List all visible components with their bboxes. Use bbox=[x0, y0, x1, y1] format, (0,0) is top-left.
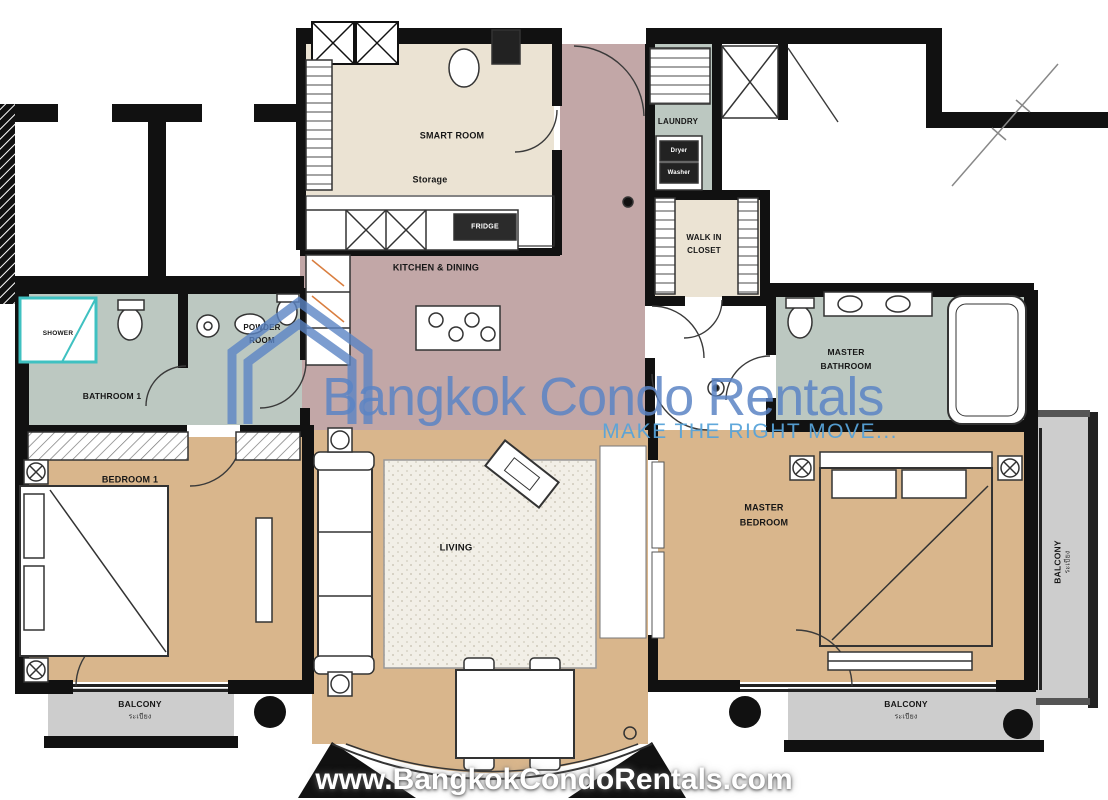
rug bbox=[384, 460, 596, 668]
label-storage: Storage bbox=[413, 176, 448, 185]
label-smart-room: SMART ROOM bbox=[420, 132, 485, 141]
laundry-shelves bbox=[650, 48, 710, 104]
label-balcony-right: BALCONY bbox=[884, 700, 927, 709]
shaft bbox=[492, 30, 520, 64]
watermark-brand: Bangkok Condo Rentals bbox=[322, 366, 883, 428]
label-master-bathroom: MASTER bbox=[827, 348, 864, 357]
label-fridge: FRIDGE bbox=[471, 224, 499, 231]
wardrobe bbox=[236, 432, 300, 460]
label-bathroom1: BATHROOM 1 bbox=[83, 392, 142, 401]
label-master-bedroom2: BEDROOM bbox=[740, 519, 788, 528]
wardrobe bbox=[28, 432, 188, 460]
label-balcony-side-sub: ระเบียง bbox=[1064, 550, 1071, 573]
closet-shelves bbox=[306, 60, 332, 190]
website-url: www.BangkokCondoRentals.com bbox=[315, 763, 792, 797]
label-balcony-left: BALCONY bbox=[118, 700, 161, 709]
label-shower: SHOWER bbox=[43, 331, 73, 338]
label-laundry: LAUNDRY bbox=[658, 118, 698, 126]
sink bbox=[449, 49, 479, 87]
sofa bbox=[318, 468, 372, 658]
watermark-tagline: MAKE THE RIGHT MOVE... bbox=[602, 420, 898, 444]
planter bbox=[729, 696, 761, 728]
symbol bbox=[623, 197, 633, 207]
label-balcony-side: BALCONY ระเบียง bbox=[1053, 540, 1071, 583]
label-kitchen-dining: KITCHEN & DINING bbox=[393, 264, 479, 273]
planter bbox=[254, 696, 286, 728]
toilet bbox=[788, 306, 812, 338]
label-walk-in-closet: WALK IN bbox=[686, 234, 721, 242]
label-dryer: Dryer bbox=[671, 148, 688, 154]
label-master-bedroom: MASTER bbox=[744, 504, 783, 513]
label-washer: Washer bbox=[668, 170, 691, 176]
dining-table bbox=[456, 670, 574, 758]
bed bbox=[820, 452, 992, 468]
wardrobe-shelves bbox=[655, 198, 675, 294]
wardrobe-shelves bbox=[738, 198, 758, 294]
label-living: LIVING bbox=[440, 543, 473, 553]
label-balcony-left-sub: ระเบียง bbox=[128, 714, 151, 721]
planter bbox=[1003, 709, 1033, 739]
label-balcony-side-text: BALCONY bbox=[1053, 540, 1062, 583]
bench bbox=[256, 518, 272, 622]
label-walk-in-closet2: CLOSET bbox=[687, 247, 721, 255]
toilet bbox=[118, 308, 142, 340]
label-bedroom1: BEDROOM 1 bbox=[102, 476, 158, 485]
floor-plan: SMART ROOM Storage FRIDGE KITCHEN & DINI… bbox=[0, 0, 1108, 800]
label-balcony-right-sub: ระเบียง bbox=[894, 714, 917, 721]
